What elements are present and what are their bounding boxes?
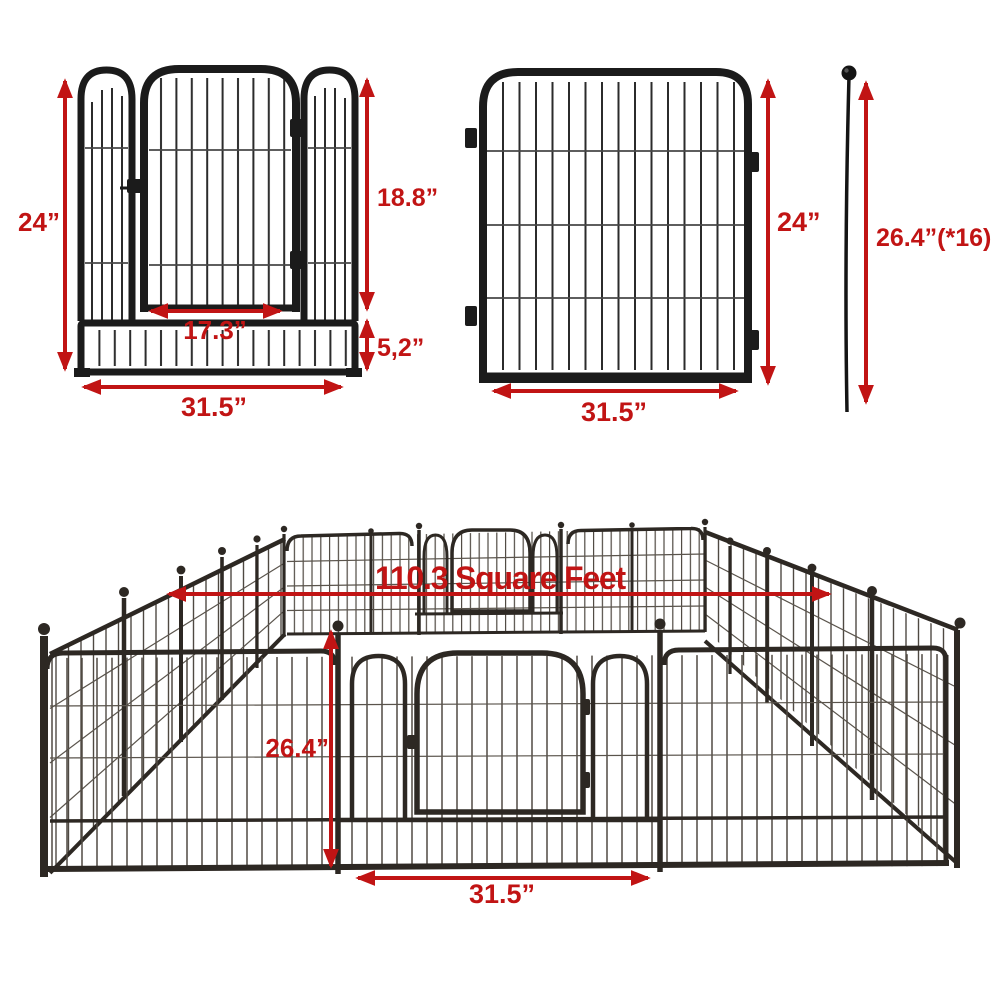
front-door-hinge-bottom [581,772,590,788]
dim-label-playpen-height: 26.4” [265,733,329,763]
front-door-latch [407,735,418,749]
dim-label-playpen-door-width: 31.5” [469,879,535,909]
diagram-canvas: 24” 18.8” 5,2” 17.3” 31.5” 24” 31.5” 26.… [0,0,1000,1000]
dim-label-panel-width: 31.5” [581,397,647,427]
dim-label-door-width: 17.3” [183,315,247,345]
door-hinge-top [290,119,302,137]
panel-tab-right-top [747,152,759,172]
ground-stake-figure [842,66,857,413]
panel-tab-right-bottom [747,330,759,350]
dim-label-door-height: 18.8” [377,184,438,212]
front-door-hinge-top [581,699,590,715]
dim-label-door-panel-height: 24” [18,207,60,237]
dim-label-playpen-area: 110.3 Square Feet [375,560,627,596]
dim-label-door-panel-width: 31.5” [181,392,247,422]
door-panel-right-arch [304,70,355,321]
stake-ball-top [842,66,857,81]
single-panel-figure [465,72,759,379]
door-hinge-bottom [290,251,302,269]
panel-tab-left-top [465,128,477,148]
door-panel-door [120,69,302,312]
dim-label-stake-length: 26.4”(*16) [876,224,991,252]
door-panel-left-arch [81,70,132,321]
dim-label-bottom-section-height: 5,2” [377,334,424,362]
door-latch [127,179,146,193]
dim-label-panel-height: 24” [777,207,821,237]
playpen-dimension-diagram: 24” 18.8” 5,2” 17.3” 31.5” 24” 31.5” 26.… [0,0,1000,1000]
panel-tab-left-bottom [465,306,477,326]
